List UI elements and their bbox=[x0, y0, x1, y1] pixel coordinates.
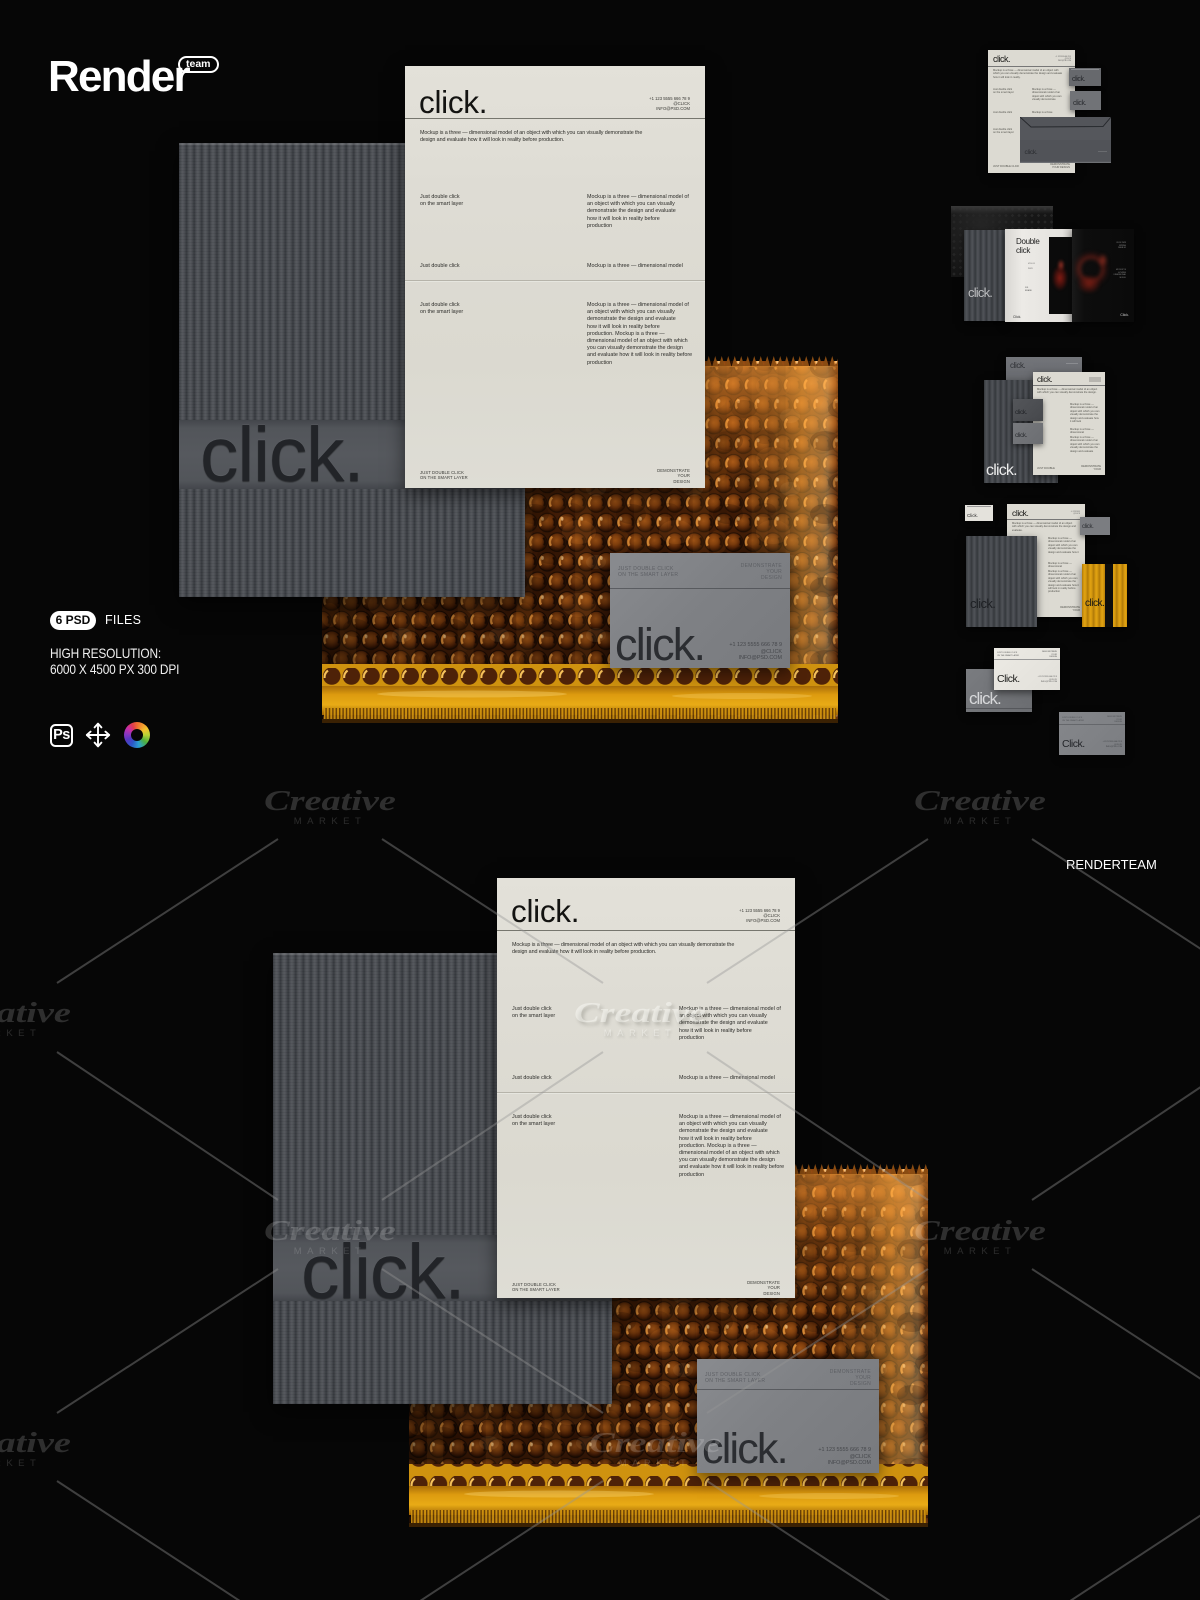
svg-text:click.: click. bbox=[1025, 149, 1038, 156]
